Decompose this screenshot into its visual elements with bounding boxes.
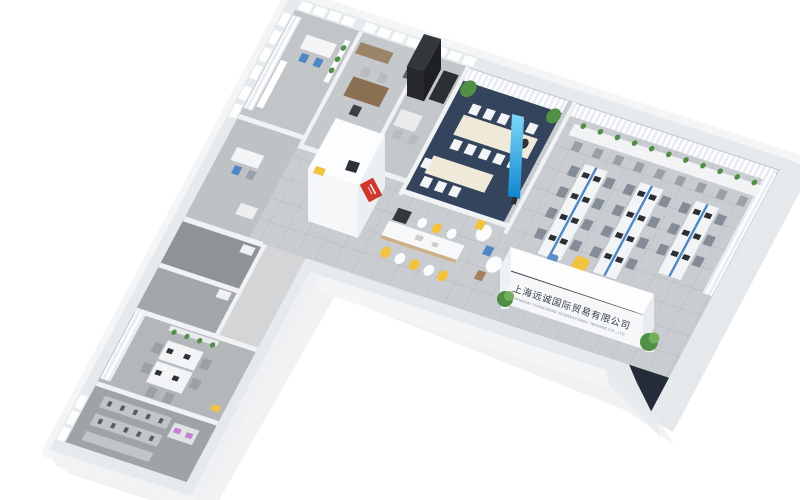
plant-right-highlight bbox=[649, 333, 660, 344]
office-floorplan-render: 上海远诚国际贸易有限公司 SHANGHAI YUANCHENG INTERNAT… bbox=[0, 0, 800, 500]
plant-left-highlight bbox=[504, 291, 514, 301]
floorplan-canvas: 上海远诚国际贸易有限公司 SHANGHAI YUANCHENG INTERNAT… bbox=[0, 0, 800, 500]
fridge-left-face bbox=[407, 66, 424, 101]
